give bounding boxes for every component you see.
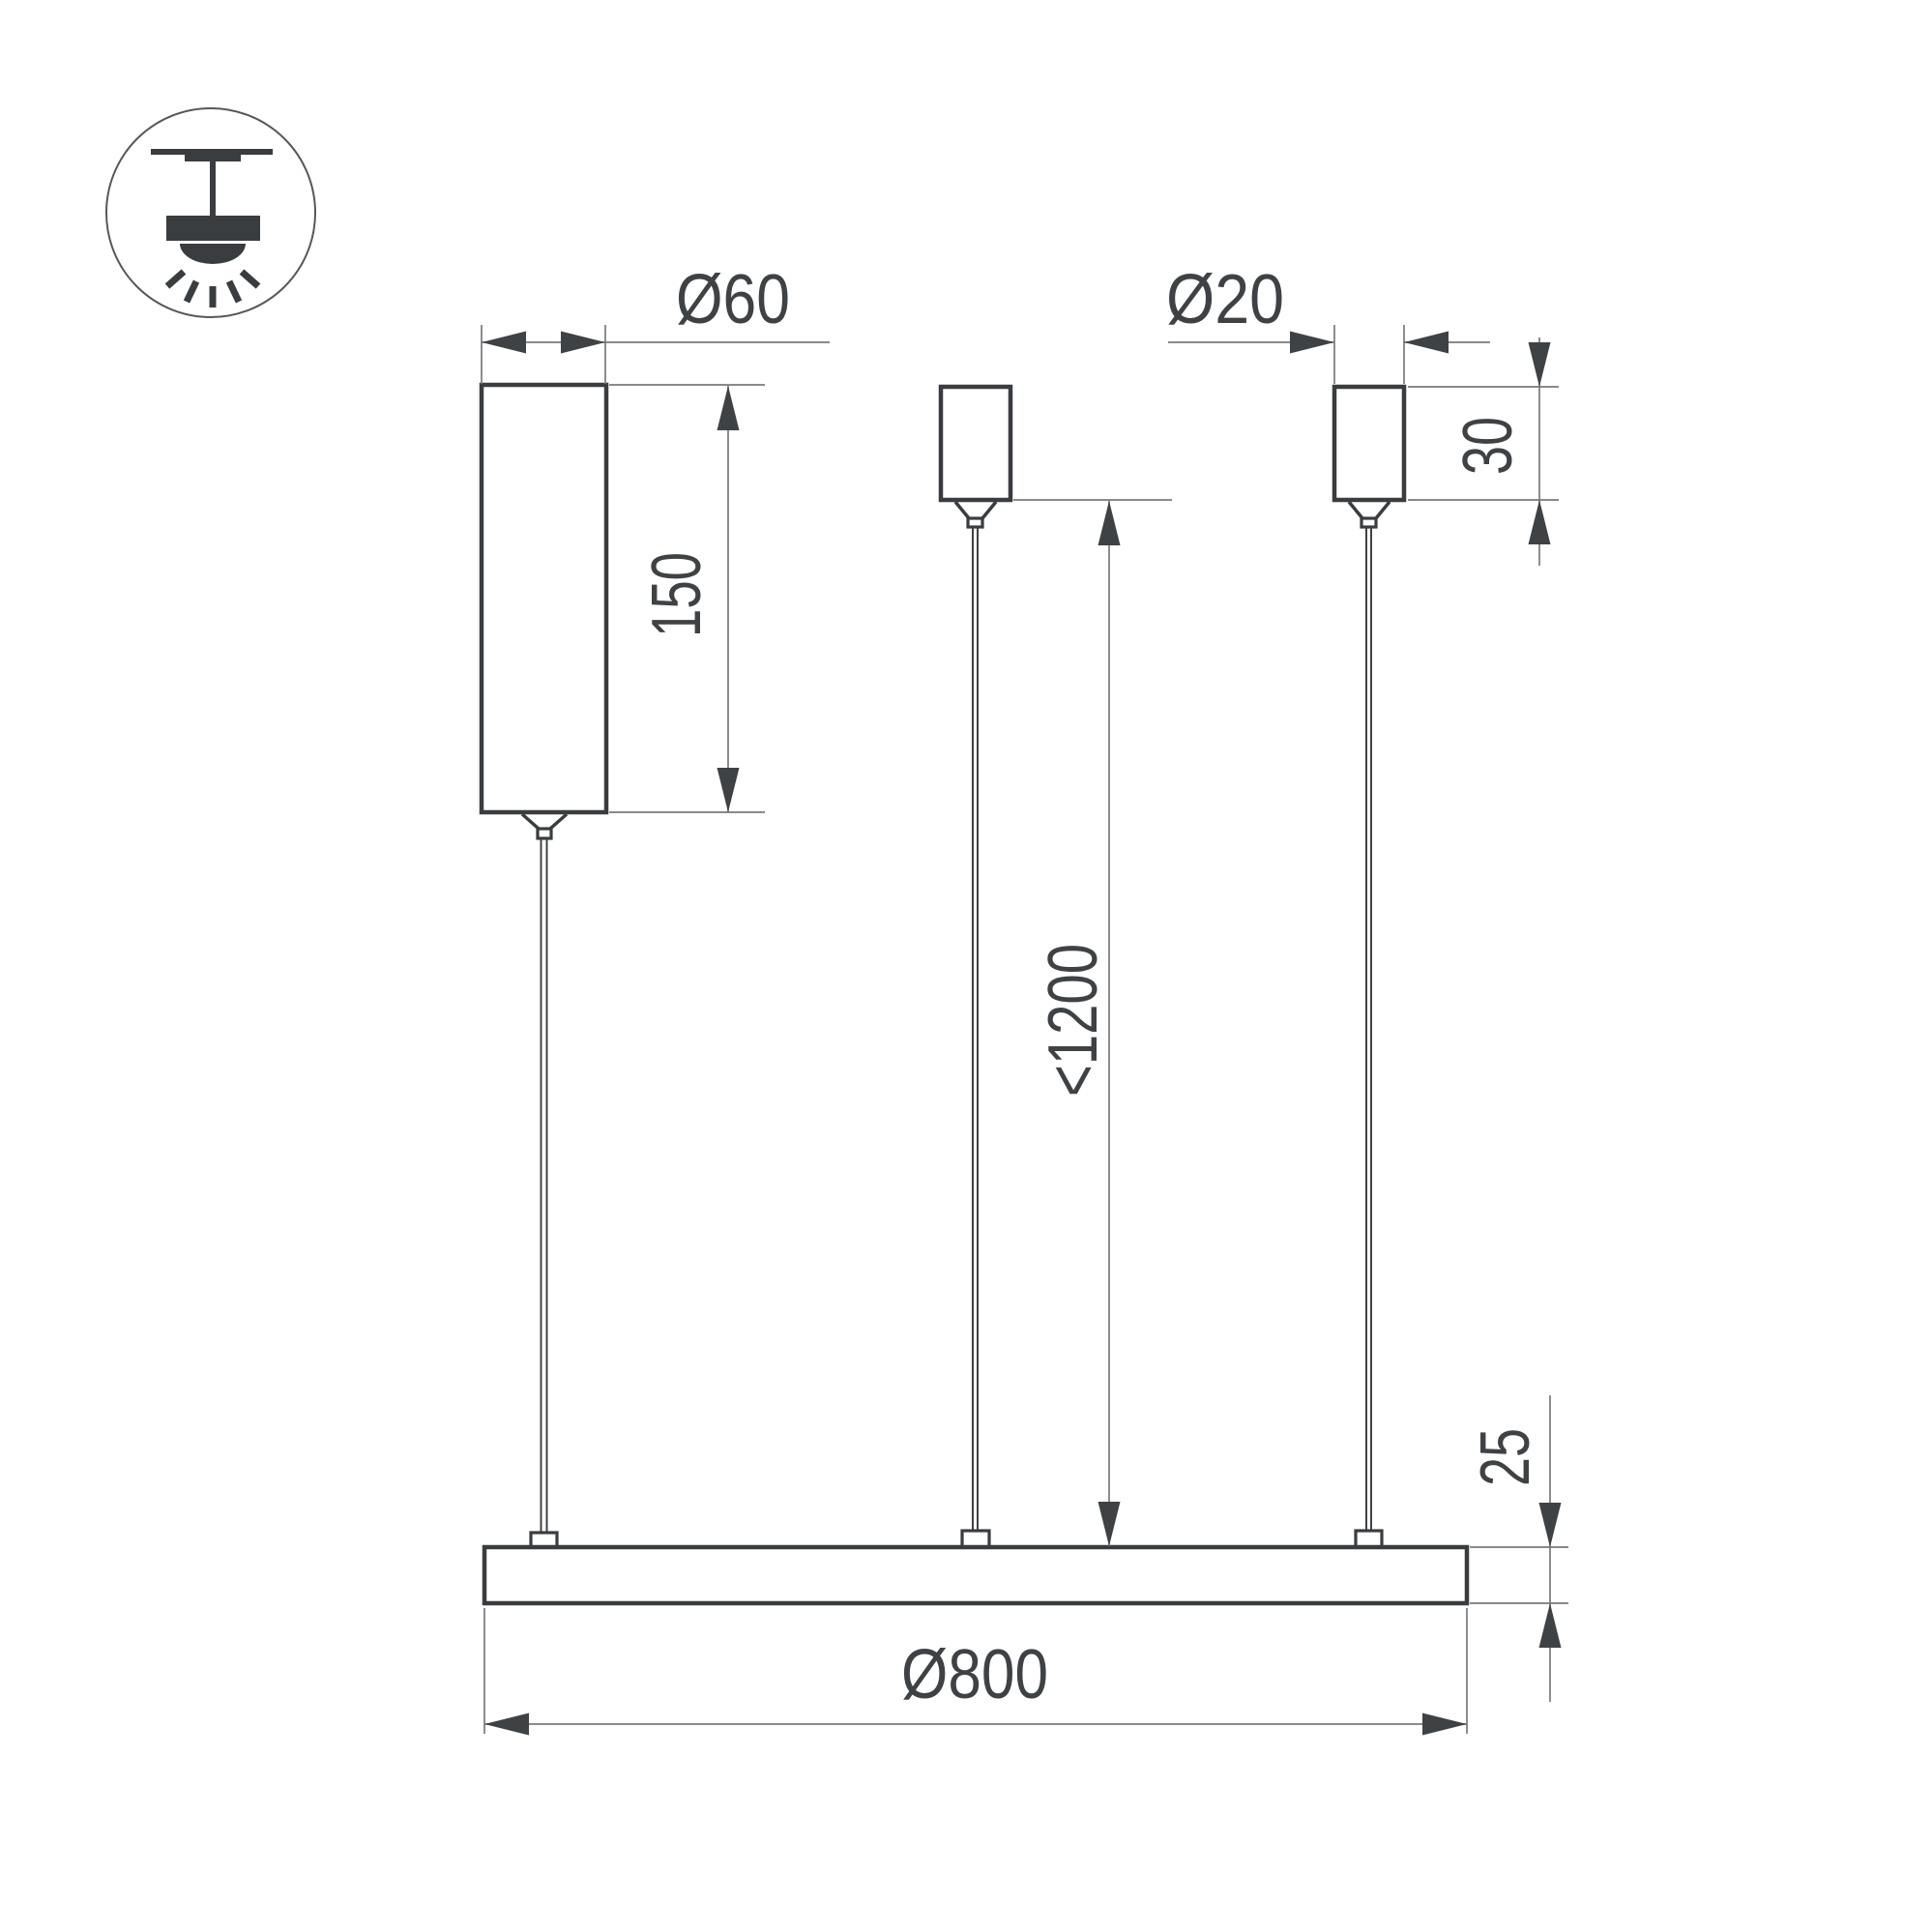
icon-stem [210, 161, 216, 217]
arrowhead-up [1529, 500, 1551, 544]
arrowhead-right [561, 332, 605, 354]
arrowhead-left [484, 1713, 529, 1736]
icon-light-dome [180, 244, 246, 264]
right-canopy [1334, 387, 1404, 1547]
canopy-taper-left [955, 502, 969, 518]
dim-label-driver-diameter: Ø60 [676, 261, 790, 338]
icon-light-rays [167, 272, 258, 307]
canopy-cable-gland [968, 518, 982, 527]
arrowhead-right [1422, 1713, 1467, 1736]
driver-body [482, 385, 606, 812]
middle-canopy [941, 387, 1010, 1547]
arrowhead-up [1098, 501, 1121, 545]
light-ray [242, 272, 258, 286]
dim-driver-diameter: Ø60 [482, 261, 830, 384]
arrowhead-left [1404, 332, 1449, 354]
dim-ring-height: 25 [1467, 1395, 1568, 1702]
ring-profile [484, 1547, 1467, 1603]
icon-ceiling-line [151, 149, 273, 155]
arrowhead-down [1529, 342, 1551, 387]
dim-label-canopy-diameter: Ø20 [1166, 261, 1284, 338]
canopy-taper-left [1349, 502, 1362, 518]
dim-driver-height: 150 [609, 385, 765, 812]
icon-mount-plate [185, 155, 241, 161]
arrowhead-down [717, 768, 740, 812]
arrowhead-left [482, 332, 526, 354]
dim-label-suspension-length: <1200 [1035, 944, 1112, 1097]
arrowhead-up [717, 386, 740, 430]
technical-drawing: Ø60 150 Ø20 30 <1200 [0, 0, 1932, 1932]
drawing-canvas: Ø60 150 Ø20 30 <1200 [0, 0, 1932, 1932]
icon-shade [166, 216, 260, 241]
dim-label-canopy-height: 30 [1449, 417, 1527, 475]
driver-cable-gland [538, 829, 551, 838]
canopy-body [1334, 387, 1404, 500]
arrowhead-right [1290, 332, 1334, 354]
canopy-taper-right [982, 502, 996, 518]
dim-suspension-length: <1200 [1013, 500, 1172, 1546]
driver-taper-left [522, 814, 539, 829]
dim-canopy-diameter: Ø20 [1166, 261, 1490, 384]
dim-ring-diameter: Ø800 [484, 1608, 1467, 1736]
canopy-body [941, 387, 1010, 500]
canopy-cable-gland [1361, 518, 1376, 527]
cable-fitting [1356, 1531, 1382, 1547]
cable-fitting [962, 1531, 989, 1547]
light-ray [187, 281, 196, 302]
arrowhead-up [1539, 1603, 1562, 1648]
light-ring-bar [484, 1547, 1467, 1603]
light-ray [167, 272, 184, 286]
driver-taper-right [550, 814, 567, 829]
arrowhead-down [1539, 1503, 1562, 1547]
arrowhead-down [1098, 1502, 1121, 1546]
dim-label-ring-height: 25 [1467, 1428, 1544, 1486]
dim-label-driver-height: 150 [638, 552, 716, 637]
dim-label-ring-diameter: Ø800 [901, 1636, 1048, 1713]
light-ray [229, 281, 239, 302]
canopy-taper-right [1376, 502, 1390, 518]
pendant-type-icon [106, 108, 315, 317]
dim-canopy-height: 30 [1408, 337, 1559, 566]
driver-unit [482, 385, 606, 1548]
